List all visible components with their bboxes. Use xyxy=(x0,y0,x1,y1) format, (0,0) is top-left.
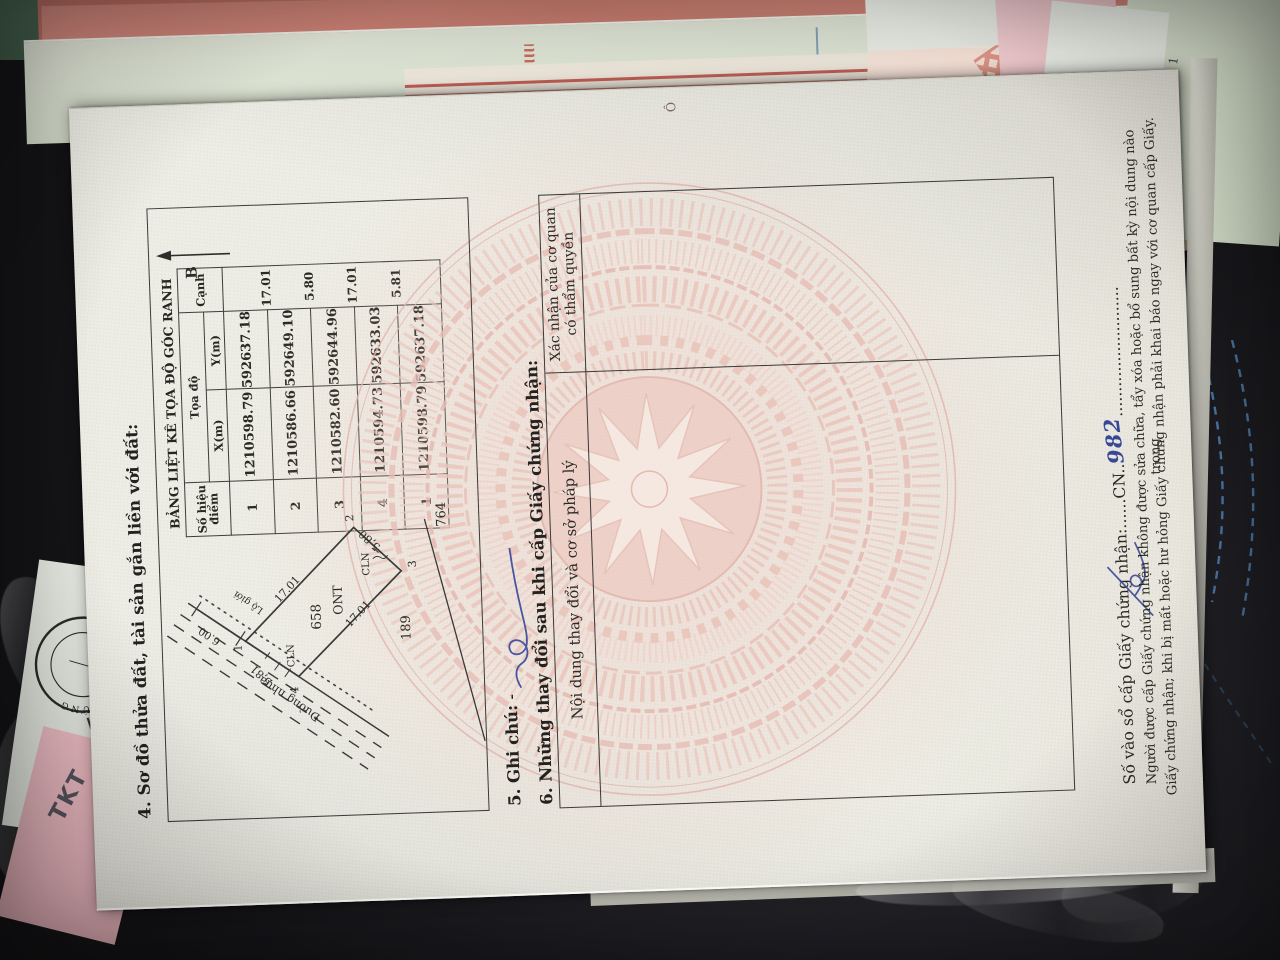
section4-heading: 4. Sơ đồ thửa đất, tài sản gắn liền với … xyxy=(122,423,155,819)
col-header-confirmation: Xác nhận của cơ quan có thẩm quyền xyxy=(539,195,585,372)
red-text-fragment xyxy=(524,44,535,62)
page-number: 1 xyxy=(1166,56,1181,66)
section6-table: Nội dung thay đổi và cơ sở pháp lý Xác n… xyxy=(538,177,1075,809)
photo-scene: 1 PHÒNG CÔNG CHỨNG TKT xyxy=(0,0,1280,960)
edge-length: 5,81 xyxy=(248,662,275,688)
cln-label: CLN xyxy=(286,644,298,668)
edge-length: 5,80 xyxy=(356,527,383,553)
adjacent-parcel: 764 xyxy=(434,502,450,527)
serial-prefix: CN xyxy=(1109,473,1129,499)
parcel-boundary xyxy=(242,526,405,678)
parcel-sketch: Đường nhựa 6.00 Lộ giới 1 2 3 4 17.01 5,… xyxy=(201,495,486,820)
land-use-code: ONT xyxy=(330,584,346,615)
vertex-label: 3 xyxy=(406,560,419,567)
handwritten-note: TKT xyxy=(45,765,94,826)
section5-heading: 5. Ghi chú: xyxy=(502,704,525,806)
column-divider xyxy=(545,354,1059,373)
margin-mark: Ô xyxy=(663,102,678,113)
vertex-label: 1 xyxy=(232,644,245,651)
vertex-label: 4 xyxy=(288,686,301,693)
parcel-number: 658 xyxy=(308,604,325,630)
edge-length: 17.01 xyxy=(272,573,303,605)
cln-label: CLN xyxy=(361,552,373,576)
handwritten-serial-number: 982 xyxy=(1098,416,1129,466)
north-label: B xyxy=(182,266,200,279)
boundary-label: Lộ giới xyxy=(232,588,265,616)
edge-length: 17.01 xyxy=(343,598,374,630)
adjacent-boundary-line xyxy=(424,517,485,743)
vertex-label: 2 xyxy=(343,514,356,521)
certificate-page: 4. Sơ đồ thửa đất, tài sản gắn liền với … xyxy=(69,69,1206,910)
section5-line: 5. Ghi chú: - xyxy=(502,694,525,807)
adjacent-parcel: 189 xyxy=(399,615,415,640)
